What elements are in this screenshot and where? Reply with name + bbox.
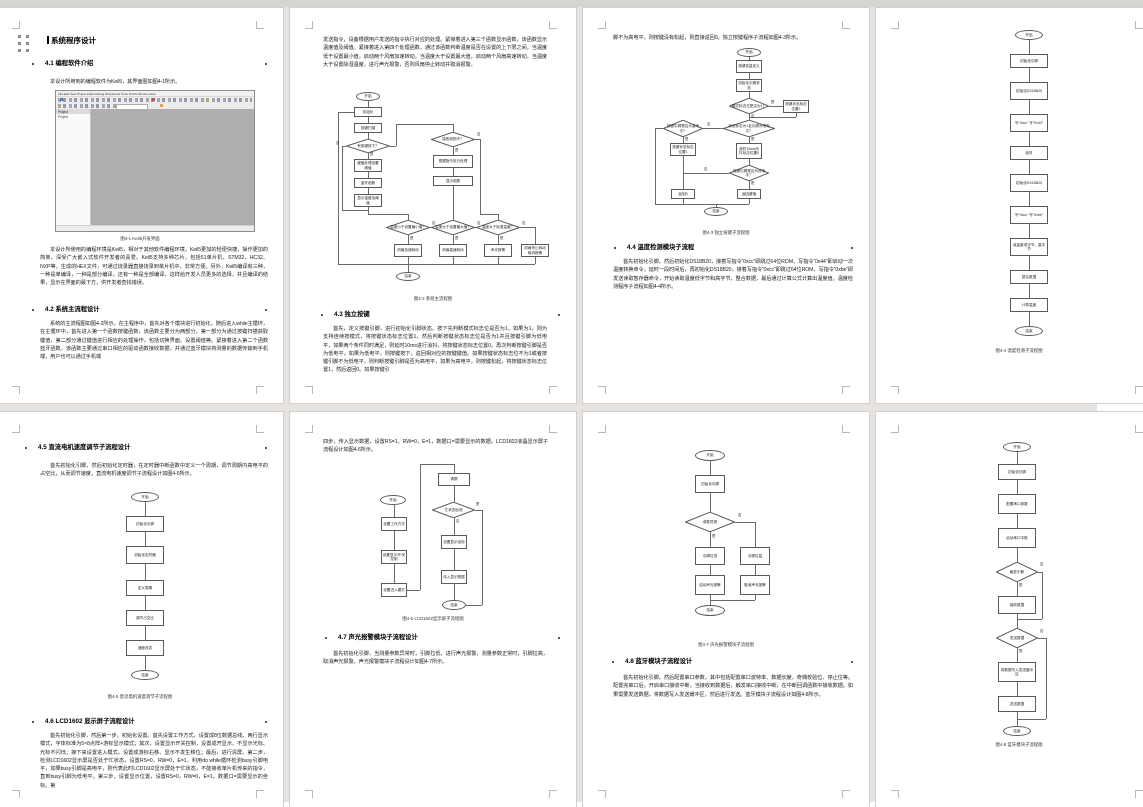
- flow-edge: [453, 257, 454, 264]
- margin-corner-mark: [549, 790, 557, 798]
- flow-node-diamond: 模式标志位是否为1？: [729, 98, 769, 114]
- flow-edge: [482, 510, 483, 605]
- document-page-6[interactable]: 四步，传入显示数据，设置RS=1，RW=0，E=1，数据口=需要显示的数据。LC…: [290, 412, 576, 807]
- flow-node-oval: 结束: [442, 600, 466, 610]
- flow-edge: [420, 464, 454, 465]
- margin-corner-mark: [12, 425, 20, 433]
- margin-corner-mark: [549, 21, 557, 29]
- flow-node-rect: 设置显示开/关控制: [381, 550, 407, 564]
- margin-corner-mark: [256, 21, 264, 29]
- keil-status-bar: [56, 225, 254, 231]
- flow-edge: [453, 168, 454, 176]
- flowchart-fig-4-7: 开始初始化引脚参数异常引脚拉低引脚拉高启动声光报警取消声光报警结束否是: [678, 448, 788, 638]
- flow-edge: [338, 112, 354, 113]
- flow-edge: [1029, 100, 1030, 114]
- flow-node-rect: 按键扫描: [354, 123, 382, 133]
- flow-edge: [1029, 40, 1030, 54]
- flow-edge: [655, 128, 663, 129]
- flow-edge: [755, 595, 756, 600]
- flow-node-rect: 蓝牙函数: [354, 178, 382, 188]
- flow-node-rect: 按键状态标志位置1: [670, 143, 696, 156]
- flow-edge: [1017, 682, 1018, 696]
- section-heading-4-1: 4.1 编程软件介绍: [45, 60, 259, 67]
- flow-edge: [453, 186, 454, 220]
- document-page-3[interactable]: 脚不为高电平，则按键没有松起，则直接返回0。独立按键程序子流程如图4-3所示。 …: [583, 8, 869, 403]
- margin-corner-mark: [256, 425, 264, 433]
- flow-edge: [1017, 719, 1046, 720]
- flow-edge: [1017, 614, 1018, 628]
- flow-edge: [394, 531, 395, 550]
- margin-corner-mark: [842, 425, 850, 433]
- flow-node-oval: 结束: [704, 207, 728, 216]
- flow-branch-label: 是: [1019, 584, 1022, 587]
- figure-caption-4-8: 图4-8 蓝牙模块子流程图: [876, 742, 1143, 748]
- flow-node-oval: 结束: [1015, 326, 1043, 336]
- margin-corner-mark: [891, 790, 899, 798]
- flow-node-rect: 写“0xcc” 写“0x44”: [1010, 114, 1048, 132]
- flow-node-rect: 初始化DS18B20: [1010, 174, 1048, 192]
- flow-edge: [755, 522, 756, 547]
- margin-corner-mark: [305, 790, 313, 798]
- margin-corner-mark: [598, 425, 606, 433]
- flow-edge: [683, 199, 684, 204]
- flow-node-diamond: 忙状态检测: [432, 502, 475, 518]
- flow-node-rect: 风扇停止转动取消报警: [521, 244, 549, 257]
- flow-edge: [368, 214, 408, 215]
- flow-node-rect: 速度改变: [126, 640, 164, 656]
- flow-node-rect: 调节占空比: [126, 610, 164, 626]
- flow-branch-label: 是: [476, 503, 479, 506]
- flow-node-rect: 初始化DS18B20: [1010, 82, 1048, 100]
- flow-node-rect: 风扇加速转动: [394, 244, 422, 257]
- flow-node-diamond: 温度大于除湿温度？: [476, 220, 520, 235]
- flow-node-rect: 设置显示坐标: [441, 535, 467, 549]
- flow-edge: [655, 128, 656, 204]
- flow-node-rect: 配置串口参数: [998, 494, 1036, 514]
- flow-node-rect: 将数据写入发送缓冲区: [998, 662, 1036, 682]
- flow-node-rect: 启动声光报警: [695, 575, 725, 595]
- flow-branch-label: 否: [477, 133, 480, 136]
- flow-edge: [535, 257, 536, 264]
- flow-edge: [735, 522, 755, 523]
- margin-corner-mark: [842, 21, 850, 29]
- paragraph: 脚不为高电平，则按键没有松起，则直接返回0。独立按键程序子流程如图4-3所示。: [613, 34, 853, 43]
- flow-edge: [749, 199, 750, 204]
- flow-node-rect: 声光报警: [484, 244, 512, 257]
- flow-node-rect: 接收数据: [998, 596, 1036, 614]
- flow-edge: [342, 146, 343, 210]
- project-panel-title: Project: [56, 109, 90, 114]
- flow-node-oval: 结束: [1003, 726, 1031, 736]
- flow-branch-label: 是: [500, 237, 503, 240]
- flow-branch-label: 否: [1040, 630, 1043, 633]
- flow-branch-label: 否: [707, 123, 710, 126]
- flow-node-rect: 初始化: [354, 107, 382, 117]
- flow-branch-label: 否: [456, 520, 459, 523]
- flow-edge: [710, 532, 711, 547]
- flow-edge: [710, 493, 711, 512]
- flow-edge: [396, 124, 397, 146]
- margin-corner-mark: [549, 386, 557, 394]
- flow-edge: [1029, 160, 1030, 174]
- flow-edge: [145, 656, 146, 670]
- flow-node-rect: 按键状态标志位置1: [783, 100, 809, 113]
- flow-node-rect: 取消声光报警: [740, 575, 770, 595]
- flowchart-fig-4-5: 开始初始化引脚初始化定时器定义周期调节占空比速度改变结束: [110, 492, 180, 682]
- flow-edge: [454, 518, 455, 535]
- margin-corner-mark: [305, 21, 313, 29]
- flow-edge: [454, 464, 455, 473]
- flow-edge: [1029, 256, 1030, 270]
- flow-node-rect: 延时: [1010, 146, 1048, 160]
- flow-node-oval: 开始: [737, 48, 761, 57]
- flowchart-fig-4-6: 清屏开始忙状态检测设置工作方式设置显示坐标设置显示开/关控制传入显示数据设置进入…: [375, 464, 490, 614]
- icon-dot: [60, 98, 63, 101]
- flow-edge: [710, 600, 755, 601]
- figure-caption-4-3: 图4-3 独立按键子流程图: [583, 230, 869, 236]
- flow-edge: [1017, 514, 1018, 528]
- flow-branch-label: 是: [410, 237, 413, 240]
- flow-edge: [342, 210, 368, 211]
- flow-node-oval: 开始: [1003, 442, 1031, 452]
- flow-branch-label: 是: [455, 237, 458, 240]
- flow-node-diamond: 温度小于设置最小值？: [386, 220, 430, 235]
- flow-node-diamond: 状态标志为1且引脚为低电平？: [723, 120, 775, 137]
- flow-edge: [796, 113, 797, 117]
- flow-node-rect: 风扇高速转动: [439, 244, 467, 257]
- flow-branch-label: 否: [704, 168, 707, 171]
- flow-edge: [683, 173, 729, 174]
- flow-node-rect: 初始化引脚: [695, 475, 725, 493]
- paragraph: 本设计所用到的编程软件为Keil5，其界面图如图4-1所示。: [40, 78, 268, 87]
- flow-branch-label: 是: [1019, 650, 1022, 653]
- toolbar-icons: [58, 98, 252, 102]
- flow-edge: [1029, 224, 1030, 238]
- project-panel: Project Project: [56, 109, 91, 226]
- flow-edge: [480, 139, 481, 214]
- margin-corner-mark: [891, 425, 899, 433]
- flow-node-rect: 延时10ms消抖标志位置0: [736, 143, 762, 159]
- margin-corner-mark: [1135, 386, 1143, 394]
- icon-dot: [206, 98, 209, 101]
- flow-edge: [703, 128, 723, 129]
- page-gap: [0, 403, 1097, 412]
- margin-corner-mark: [598, 21, 606, 29]
- flow-edge: [755, 565, 756, 575]
- margin-corner-mark: [1135, 425, 1143, 433]
- document-page-1[interactable]: 系统程序设计 4.1 编程软件介绍 本设计所用到的编程软件为Keil5，其界面图…: [0, 8, 283, 403]
- flow-node-rect: 初始化引脚: [126, 516, 164, 532]
- flow-node-rect: 键值处理设置阈值: [354, 159, 382, 172]
- flow-edge: [145, 596, 146, 610]
- flow-node-diamond: 触发中断: [996, 562, 1038, 582]
- flow-node-rect: 启动串口中断: [998, 528, 1036, 548]
- flow-edge: [408, 235, 409, 244]
- flow-edge: [394, 564, 395, 583]
- margin-corner-mark: [842, 386, 850, 394]
- flow-branch-label: 是: [455, 149, 458, 152]
- figure-caption-4-2: 图4-2 系统主流程图: [290, 296, 576, 302]
- flow-node-oval: 开始: [356, 92, 380, 101]
- flow-node-oval: 结束: [396, 272, 420, 281]
- paragraph: 首先初始化引脚，然后初始化DS18B20，接着写指令“0xcc”即跳过64位RO…: [613, 258, 853, 302]
- flow-node-rect: 显示函数: [433, 176, 473, 186]
- flow-node-diamond: 发送数据: [996, 628, 1038, 648]
- document-page-7[interactable]: 开始初始化引脚参数异常引脚拉低引脚拉高启动声光报警取消声光报警结束否是 图4-7…: [583, 412, 869, 807]
- flow-edge: [145, 564, 146, 580]
- margin-corner-mark: [305, 386, 313, 394]
- flow-node-oval: 开始: [695, 450, 725, 461]
- margin-corner-mark: [598, 790, 606, 798]
- flow-edge: [1017, 582, 1018, 596]
- margin-corner-mark: [305, 425, 313, 433]
- section-heading-4-7: 4.7 声光报警模块子流程设计: [338, 634, 552, 641]
- flow-branch-label: 否: [1040, 563, 1043, 566]
- margin-corner-mark: [1135, 21, 1143, 29]
- section-heading-4-4: 4.4 温度检测模块子流程: [627, 244, 845, 251]
- flow-node-rect: 写“0xcc” 写“0xbe”: [1010, 206, 1048, 224]
- flow-node-rect: 引脚拉高: [740, 547, 770, 565]
- flow-node-rect: 初始化引脚: [1010, 54, 1048, 68]
- flow-branch-label: 是: [751, 138, 754, 141]
- section-heading-4-3: 4.3 独立按键: [334, 311, 552, 318]
- section-heading-4-5: 4.5 直流电机速度调节子流程设计: [38, 444, 259, 451]
- figure-caption-4-7: 图4-7 声光报警模块子流程图: [583, 642, 869, 648]
- flow-edge: [1029, 284, 1030, 298]
- flow-edge: [407, 590, 420, 591]
- figure-caption-4-4: 图4-4 温度检测子流程图: [876, 348, 1143, 354]
- flow-edge: [466, 605, 482, 606]
- flow-branch-label: 是: [370, 153, 373, 156]
- flow-node-rect: 返回0: [671, 189, 695, 199]
- margin-dots: [18, 35, 21, 38]
- flow-edge: [145, 532, 146, 546]
- flow-edge: [145, 502, 146, 516]
- paragraph: 首先初始化引脚，然后第一步，初始化设置。首先设置工作方式，设置成8位数据总线、两…: [40, 732, 268, 806]
- flow-edge: [390, 146, 396, 147]
- document-page-4[interactable]: 开始初始化引脚初始化DS18B20写“0xcc” 写“0x44”延时初始化DS1…: [876, 8, 1143, 403]
- flow-node-rect: 传入显示数据: [441, 570, 467, 584]
- paragraph: 首先初始化引脚，然后初始化定时器，在定时器中断函数中定义一个周期，调节周期内高电…: [40, 462, 268, 488]
- editor-area: [91, 109, 254, 226]
- flow-node-rect: 设置进入模式: [381, 583, 407, 597]
- flow-edge: [1029, 132, 1030, 146]
- text-cursor: [47, 36, 49, 44]
- flow-node-diamond: 有按键按下？: [346, 139, 390, 153]
- flow-edge: [1029, 68, 1030, 82]
- flow-edge: [368, 207, 369, 214]
- flow-node-rect: 定义周期: [126, 580, 164, 596]
- flow-node-rect: 初始化引脚: [998, 464, 1036, 480]
- flow-edge: [420, 464, 421, 590]
- flow-node-rect: 清屏: [438, 473, 470, 486]
- margin-corner-mark: [598, 386, 606, 394]
- flow-edge: [396, 124, 453, 125]
- section-heading-4-2: 4.2 系统主流程设计: [45, 306, 259, 313]
- margin-corner-mark: [256, 790, 264, 798]
- flowchart-fig-4-2: 开始初始化按键扫描有按键按下？键值处理设置阈值蓝牙函数显示温度及阈值接收到指令？…: [330, 92, 550, 292]
- flow-edge: [338, 264, 535, 265]
- flow-node-rect: 初始化定时器: [126, 546, 164, 564]
- flow-edge: [453, 235, 454, 244]
- flowchart-fig-4-3: 开始按键变量定义初始化引脚状态模式标志位是否为1？按键状态标志位置1状态标志为1…: [643, 46, 813, 224]
- flowchart-fig-4-4: 开始初始化引脚初始化DS18B20写“0xcc” 写“0x44”延时初始化DS1…: [999, 30, 1059, 340]
- flow-node-rect: 读温度低字节、高字节: [1010, 238, 1048, 256]
- flow-branch-label: 是: [751, 182, 754, 185]
- flow-edge: [769, 106, 783, 107]
- icon-dot: [152, 98, 155, 101]
- flow-node-oval: 结束: [695, 605, 725, 616]
- flow-node-rect: 显示温度及阈值: [354, 194, 382, 207]
- flow-node-diamond: 按键引脚是否为低电平？: [729, 165, 769, 181]
- paragraph: 首先初始化引脚，当测量参数异常时，引脚拉低，进行声光报警，测量参数正常时，引脚拉…: [323, 650, 548, 676]
- flow-branch-label: 是: [685, 138, 688, 141]
- paragraph: 首先初始化引脚，然后配置串口参数，其中包括配置串口波特率、数据长度、奇偶校验位、…: [613, 674, 853, 718]
- flow-edge: [1038, 638, 1046, 639]
- flow-edge: [1017, 452, 1018, 464]
- project-tree-item: Project: [58, 115, 68, 119]
- flow-edge: [475, 510, 482, 511]
- figure-caption-4-1: 图4-1 Keil5开发界面: [0, 236, 283, 242]
- flow-edge: [749, 117, 796, 118]
- figure-caption-4-6: 图4-6 LCD1602显示屏子流程图: [290, 616, 576, 622]
- paragraph: 系统的主流程图如图4-2所示。在主程序中，首先对各个模块进行初始化，随后进入wh…: [40, 320, 268, 374]
- flow-edge: [454, 486, 455, 502]
- flow-branch-label: 否: [477, 222, 480, 225]
- chapter-heading: 系统程序设计: [47, 36, 96, 45]
- flow-node-oval: 开始: [1015, 30, 1043, 40]
- flow-edge: [1017, 619, 1042, 620]
- flow-node-rect: 根据指令执行处理: [433, 155, 473, 168]
- flow-node-oval: 开始: [131, 492, 159, 502]
- flow-edge: [1017, 648, 1018, 662]
- flow-edge: [498, 257, 499, 264]
- paragraph: 本设计所使用的编程环境是Keil5，相对于其他软件编程环境，Keil5更加的轻便…: [40, 246, 268, 304]
- flow-node-oval: 结束: [131, 670, 159, 680]
- flow-edge: [408, 257, 409, 264]
- margin-corner-mark: [1135, 790, 1143, 798]
- flowchart-fig-4-8: 开始初始化引脚配置串口参数启动串口中断触发中断接收数据发送数据将数据写入发送缓冲…: [991, 442, 1053, 738]
- margin-corner-mark: [12, 386, 20, 394]
- document-page-5[interactable]: 4.5 直流电机速度调节子流程设计 首先初始化引脚，然后初始化定时器，在定时器中…: [0, 412, 283, 807]
- flow-edge: [1029, 192, 1030, 206]
- flow-node-diamond: 按键引脚是否为高电平？: [663, 120, 703, 137]
- paragraph: 首先，定义按键引脚，进行初始化引脚状态。按下先判断模式标志位是否为1，如果为1，…: [323, 325, 547, 391]
- flow-edge: [453, 124, 454, 132]
- flow-edge: [749, 181, 750, 189]
- flow-edge: [710, 565, 711, 575]
- flow-node-rect: 按键变量定义: [736, 60, 762, 73]
- flow-branch-label: 否: [738, 514, 741, 517]
- flow-edge: [454, 584, 455, 600]
- keil-body: Project Project: [56, 109, 254, 226]
- section-heading-4-8: 4.8 蓝牙模块子流程设计: [625, 658, 845, 665]
- document-page-2[interactable]: 发送指令，设备根据用户发送的指令执行对应的处理。紧接着进入第三个函数显示函数，该…: [290, 8, 576, 403]
- margin-corner-mark: [549, 425, 557, 433]
- flow-node-rect: 发送数据: [998, 696, 1036, 712]
- flow-edge: [535, 227, 536, 244]
- margin-corner-mark: [12, 21, 20, 29]
- flow-edge: [1017, 548, 1018, 562]
- flow-node-rect: 返回键值: [737, 189, 761, 199]
- margin-corner-mark: [891, 386, 899, 394]
- flow-node-rect: 整合数据: [1010, 270, 1048, 284]
- flow-node-diamond: 温度大于设置最大值？: [431, 220, 475, 235]
- flow-edge: [145, 626, 146, 640]
- canvas-top-edge: [0, 0, 1143, 7]
- flow-branch-label: 是: [712, 535, 715, 538]
- flow-edge: [1017, 480, 1018, 494]
- flow-node-diamond: 接收到指令？: [431, 132, 475, 147]
- document-page-8[interactable]: 开始初始化引脚配置串口参数启动串口中断触发中断接收数据发送数据将数据写入发送缓冲…: [876, 412, 1143, 807]
- embedded-image-keil5[interactable]: File Edit View Project Flash Debug Perip…: [55, 90, 255, 232]
- flow-edge: [710, 461, 711, 475]
- flow-edge: [394, 505, 395, 517]
- flow-edge: [1042, 572, 1043, 619]
- flow-edge: [454, 549, 455, 570]
- flow-edge: [498, 235, 499, 244]
- flow-edge: [338, 112, 339, 264]
- margin-corner-mark: [891, 21, 899, 29]
- flow-branch-label: 否: [522, 222, 525, 225]
- flow-edge: [480, 214, 498, 215]
- flow-node-oval: 开始: [380, 495, 406, 505]
- flow-node-rect: 设置工作方式: [381, 517, 407, 531]
- flow-edge: [453, 147, 454, 155]
- margin-corner-mark: [256, 386, 264, 394]
- flow-node-rect: 初始化引脚状态: [736, 79, 762, 92]
- icon-dot: [160, 104, 163, 107]
- flow-edge: [1029, 312, 1030, 326]
- margin-corner-mark: [842, 790, 850, 798]
- flow-node-diamond: 参数异常: [685, 512, 735, 532]
- flow-branch-label: 否: [751, 115, 754, 118]
- flow-edge: [520, 227, 535, 228]
- flow-branch-label: 否: [336, 142, 339, 145]
- flow-node-rect: 计算温度: [1010, 298, 1048, 312]
- margin-corner-mark: [12, 790, 20, 798]
- flow-edge: [655, 204, 749, 205]
- figure-caption-4-5: 图4-5 直流电机速度调节子流程图: [0, 694, 283, 700]
- paragraph: 发送指令，设备根据用户发送的指令执行对应的处理。紧接着进入第三个函数显示函数，该…: [323, 36, 547, 90]
- flow-edge: [408, 264, 409, 272]
- flow-edge: [1046, 638, 1047, 719]
- flow-branch-label: 是: [771, 101, 774, 104]
- paragraph: 四步，传入显示数据，设置RS=1，RW=0，E=1，数据口=需要显示的数据。LC…: [323, 438, 548, 456]
- flow-node-rect: 引脚拉低: [695, 547, 725, 565]
- section-heading-4-6: 4.6 LCD1602 显示屏子流程设计: [45, 718, 259, 725]
